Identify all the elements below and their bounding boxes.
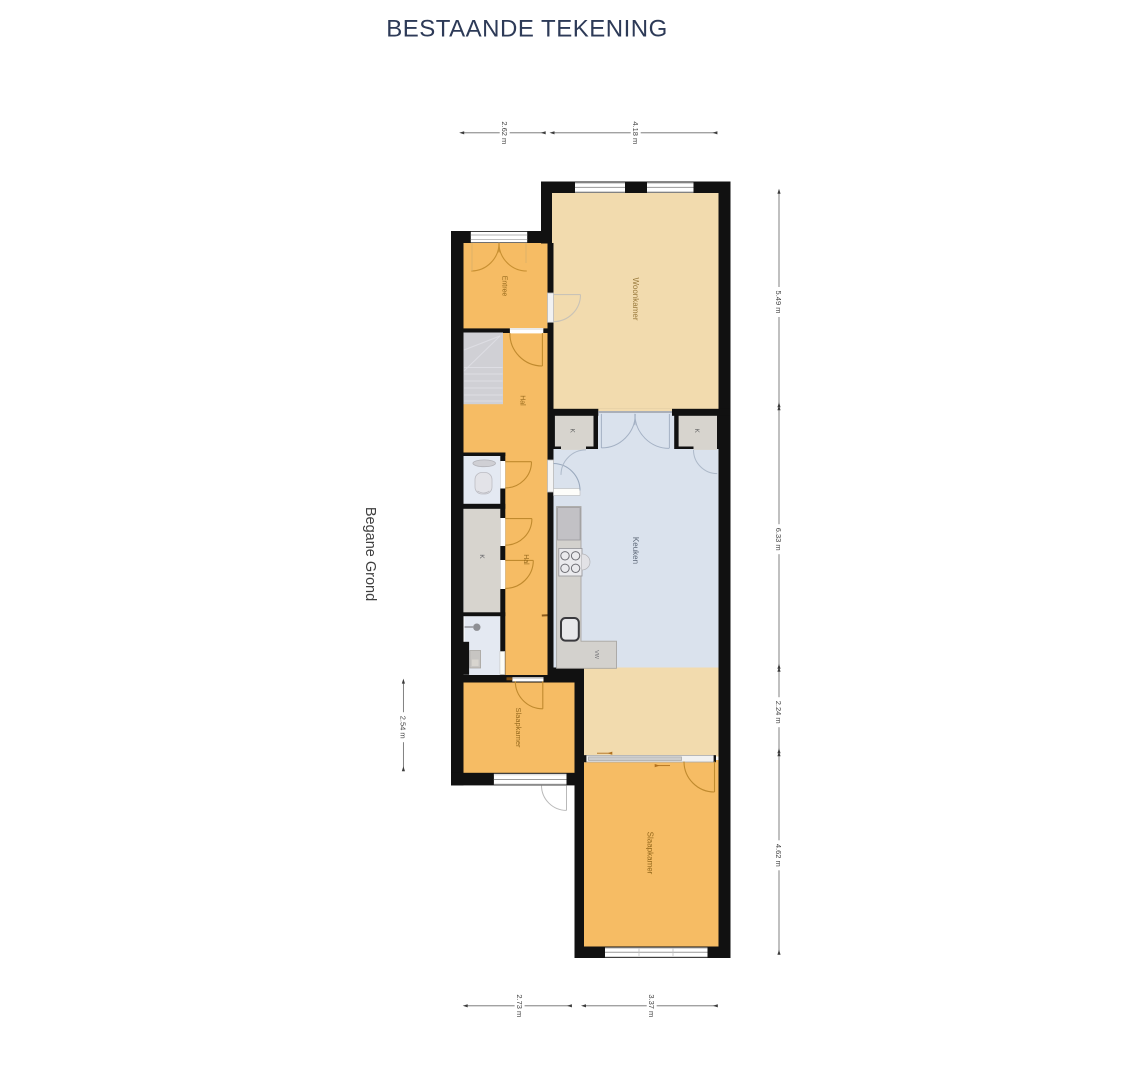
svg-text:Slaapkamer: Slaapkamer	[646, 832, 655, 875]
svg-text:Woonkamer: Woonkamer	[631, 278, 640, 321]
svg-text:Hal: Hal	[518, 395, 525, 406]
svg-text:BESTAANDE TEKENING: BESTAANDE TEKENING	[386, 16, 668, 43]
svg-text:Hal: Hal	[522, 554, 529, 565]
svg-text:K: K	[568, 429, 575, 434]
svg-text:Begane Grond: Begane Grond	[362, 507, 378, 601]
svg-text:2.62 m: 2.62 m	[500, 121, 509, 144]
svg-text:2.73 m: 2.73 m	[515, 994, 524, 1017]
svg-text:4.18 m: 4.18 m	[631, 121, 640, 144]
svg-text:2.54 m: 2.54 m	[399, 716, 408, 739]
svg-text:4.62 m: 4.62 m	[774, 844, 783, 867]
svg-text:VW: VW	[593, 650, 599, 660]
svg-text:6.33 m: 6.33 m	[774, 528, 783, 551]
svg-text:Slaapkamer: Slaapkamer	[514, 707, 523, 748]
svg-text:3.37 m: 3.37 m	[647, 994, 656, 1017]
svg-text:2.24 m: 2.24 m	[774, 701, 783, 724]
svg-text:K: K	[478, 554, 485, 559]
svg-text:Entree: Entree	[500, 276, 507, 297]
svg-text:K: K	[693, 429, 700, 434]
svg-text:5.49 m: 5.49 m	[774, 291, 783, 314]
svg-text:Keuken: Keuken	[631, 537, 640, 564]
